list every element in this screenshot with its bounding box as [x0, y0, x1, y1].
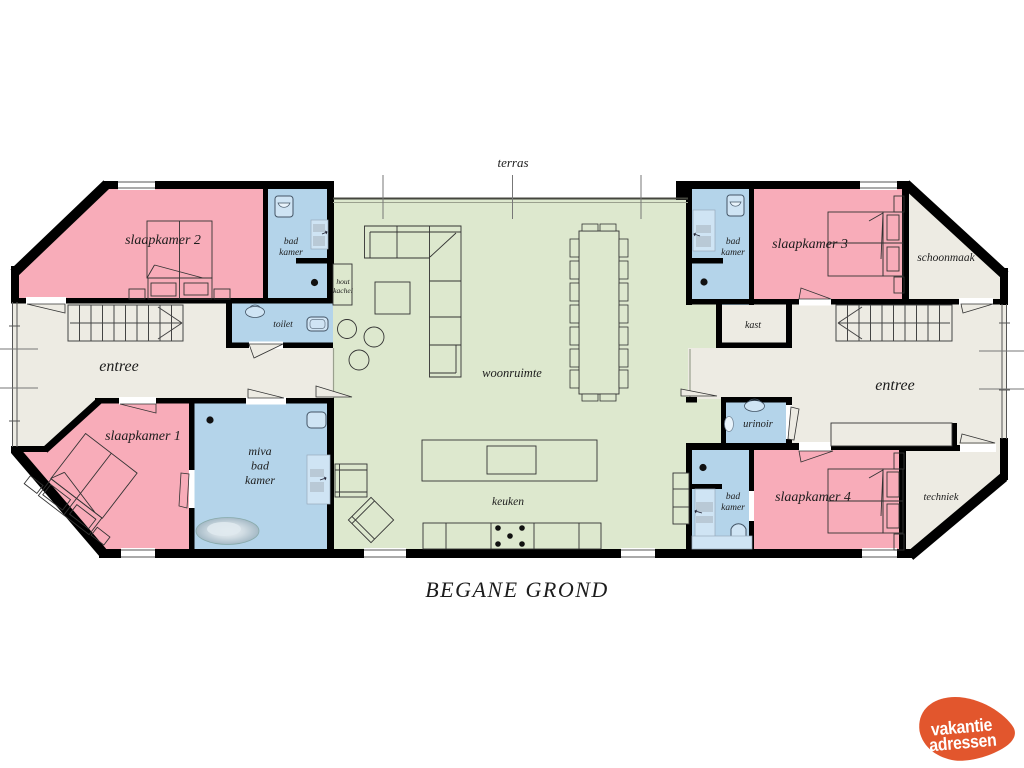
svg-text:bad: bad: [726, 237, 741, 247]
svg-text:terras: terras: [497, 155, 528, 170]
svg-text:techniek: techniek: [924, 492, 959, 503]
svg-text:bad: bad: [251, 459, 270, 473]
svg-text:toilet: toilet: [273, 320, 293, 330]
svg-text:slaapkamer 2: slaapkamer 2: [125, 233, 201, 248]
svg-text:miva: miva: [248, 444, 271, 458]
svg-text:woonruimte: woonruimte: [482, 366, 542, 380]
svg-text:bad: bad: [284, 237, 299, 247]
svg-text:kamer: kamer: [721, 248, 745, 258]
svg-text:entree: entree: [99, 358, 138, 375]
svg-text:kast: kast: [745, 320, 761, 331]
svg-text:slaapkamer 4: slaapkamer 4: [775, 490, 851, 505]
svg-text:keuken: keuken: [492, 496, 524, 508]
svg-text:kamer: kamer: [245, 473, 275, 487]
svg-text:bad: bad: [726, 492, 741, 502]
svg-text:entree: entree: [875, 377, 914, 394]
svg-text:kamer: kamer: [279, 248, 303, 258]
svg-text:kachel: kachel: [333, 286, 353, 295]
svg-text:BEGANE GROND: BEGANE GROND: [425, 577, 609, 602]
svg-text:hout: hout: [336, 277, 350, 286]
svg-text:slaapkamer 1: slaapkamer 1: [105, 429, 181, 444]
svg-text:schoonmaak: schoonmaak: [917, 252, 975, 264]
svg-text:kamer: kamer: [721, 503, 745, 513]
svg-text:slaapkamer 3: slaapkamer 3: [772, 237, 848, 252]
svg-text:urinoir: urinoir: [743, 419, 774, 430]
